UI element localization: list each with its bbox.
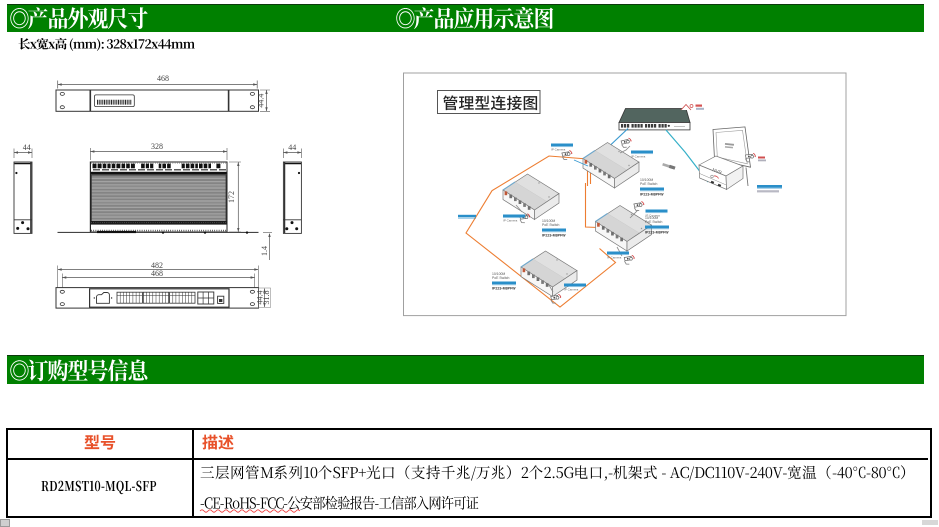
svg-text:IP Camera: IP Camera [646, 214, 661, 218]
svg-text:IP223-M8PFW: IP223-M8PFW [492, 287, 516, 291]
svg-text:IP223-M8PFW: IP223-M8PFW [542, 234, 566, 238]
svg-text:PoE Switch: PoE Switch [542, 223, 559, 227]
svg-text:PoE Switch: PoE Switch [645, 220, 662, 224]
svg-text:PoE Switch: PoE Switch [492, 276, 509, 280]
svg-text:IP Camera: IP Camera [564, 288, 579, 292]
svg-text:PoE Switch: PoE Switch [640, 182, 657, 186]
svg-text:IP Camera: IP Camera [503, 219, 518, 223]
svg-text:IP Camera: IP Camera [607, 256, 622, 260]
svg-text:IP Camera: IP Camera [551, 148, 566, 152]
svg-text:IP223-M8PFW: IP223-M8PFW [640, 193, 664, 197]
svg-text:IP Camera: IP Camera [631, 155, 646, 159]
svg-text:IP223-M8PFW: IP223-M8PFW [645, 231, 669, 235]
